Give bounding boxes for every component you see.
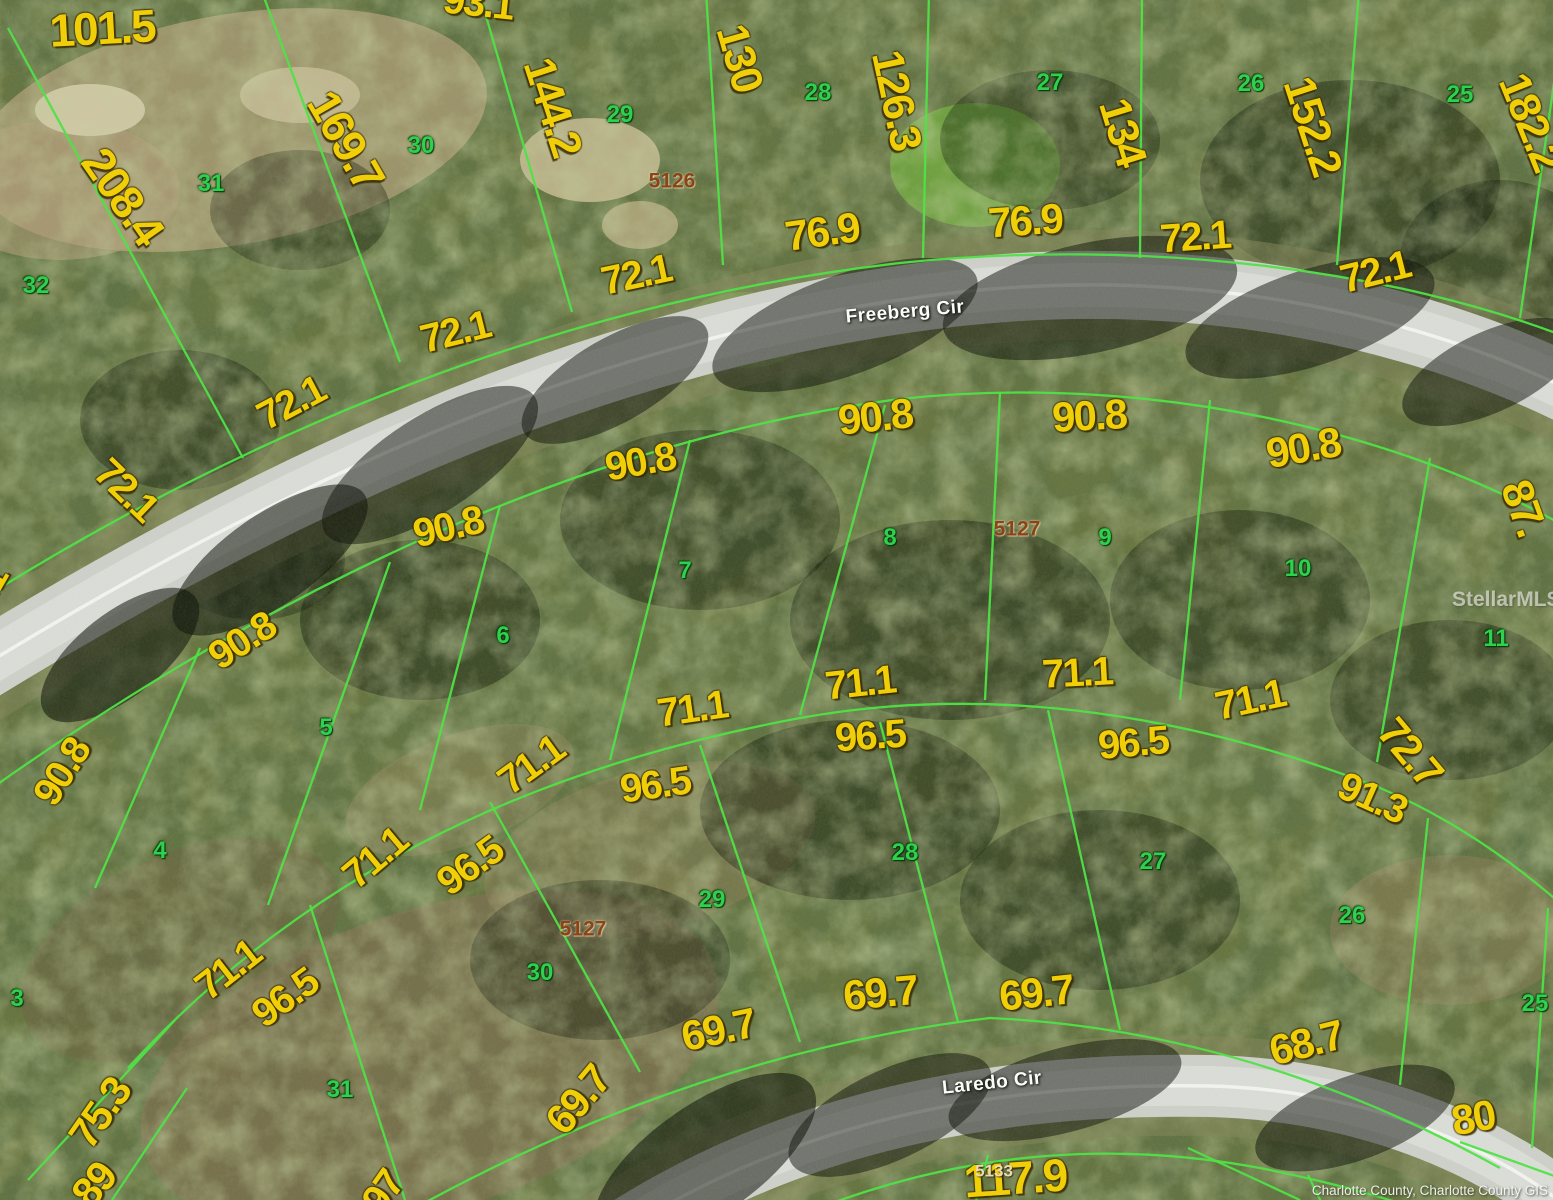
stellar-mls-watermark: StellarMLS <box>1452 588 1553 612</box>
map-attribution: Charlotte County, Charlotte County GIS <box>1312 1183 1548 1198</box>
aerial-parcel-map[interactable]: 101.593.1208.4169.7144.2130126.3134152.2… <box>0 0 1553 1200</box>
terrain-satellite-imagery <box>0 0 1553 1200</box>
